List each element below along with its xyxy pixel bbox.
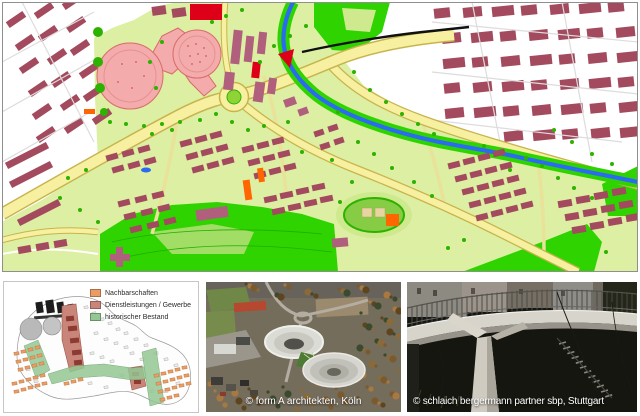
- legend: Nachbarschaften Dienstleistungen / Gewer…: [90, 289, 191, 321]
- aerial-photo-panel: © form A architekten, Köln: [206, 282, 401, 412]
- sports-field: [336, 192, 412, 238]
- aerial-photo-graphic: [206, 282, 401, 412]
- legend-label: Nachbarschaften: [105, 290, 158, 297]
- pond: [141, 168, 151, 173]
- photo-credit-aerial: © form A architekten, Köln: [246, 396, 362, 407]
- master-plan-map: [2, 2, 638, 272]
- legend-item: Dienstleistungen / Gewerbe: [90, 301, 191, 309]
- photo-credit-bridge: © schlaich bergermann partner sbp, Stutt…: [413, 396, 604, 407]
- concept-map-panel: Nachbarschaften Dienstleistungen / Gewer…: [3, 281, 199, 413]
- round-building-1: [20, 318, 42, 340]
- bridge-photo-graphic: [407, 282, 637, 412]
- legend-label: Dienstleistungen / Gewerbe: [105, 302, 191, 309]
- legend-swatch-nachbarschaften: [90, 289, 101, 297]
- legend-swatch-dienstleistungen: [90, 301, 101, 309]
- bridge-photo-panel: © schlaich bergermann partner sbp, Stutt…: [407, 282, 637, 412]
- legend-item: Nachbarschaften: [90, 289, 191, 297]
- legend-label: historischer Bestand: [105, 314, 168, 321]
- master-plan-map-graphic: [2, 2, 638, 272]
- legend-swatch-historischer-bestand: [90, 313, 101, 321]
- oval-building-2: [303, 353, 365, 387]
- oval-building-1: [265, 326, 323, 358]
- plan-collage: Nachbarschaften Dienstleistungen / Gewer…: [0, 0, 640, 416]
- round-building-2: [43, 317, 61, 335]
- legend-item: historischer Bestand: [90, 313, 191, 321]
